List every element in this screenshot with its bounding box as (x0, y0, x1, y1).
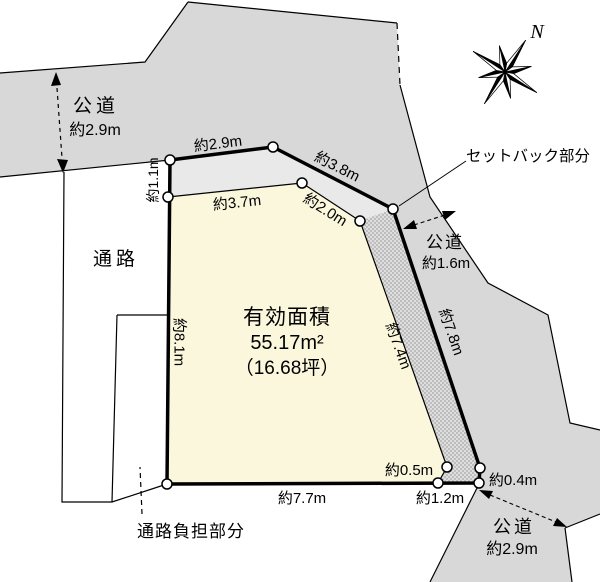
road-left-name: 公道 (73, 95, 119, 117)
vertex (388, 204, 398, 214)
vertex (162, 479, 172, 489)
road-bottom-name: 公道 (493, 517, 535, 537)
vertex (297, 178, 307, 188)
road-bottom-width: 約2.9m (486, 540, 538, 558)
area-sqm: 55.17m² (250, 332, 324, 354)
passage-burden-label: 通路負担部分 (137, 522, 245, 541)
edge-left-top-label: 約1.1m (145, 157, 161, 202)
passage-label: 通路 (93, 248, 139, 270)
setback-label: セットバック部分 (466, 147, 590, 165)
passage-burden-leader-line (140, 467, 142, 514)
edge-left-label: 約8.1m (171, 318, 188, 366)
vertex (475, 463, 485, 473)
passage-outline (62, 172, 167, 502)
vertex (165, 155, 175, 165)
vertex (442, 462, 452, 472)
vertex (433, 478, 443, 488)
edge-bottom-12-label: 約1.2m (416, 490, 464, 507)
area-tsubo: （16.68坪） (235, 357, 340, 379)
vertex (268, 142, 278, 152)
vertex (163, 192, 173, 202)
road-right-width: 約1.6m (422, 255, 470, 272)
north-label: N (529, 21, 545, 43)
vertex (474, 478, 484, 488)
area-title: 有効面積 (243, 306, 331, 329)
vertex (355, 216, 365, 226)
diagram-canvas: N 公道 約2.9m 通路 約1.1m 約2.9m 約3.8m 約3.7m 約2… (0, 0, 600, 582)
road-right-name: 公道 (426, 233, 464, 252)
road-left-width: 約2.9m (69, 121, 121, 139)
edge-corner-04-label: 約0.4m (489, 472, 537, 489)
passage-lines (62, 172, 168, 502)
passage-burden-left-line (112, 315, 117, 502)
edge-bottom-label: 約7.7m (278, 490, 326, 507)
edge-corner-05-label: 約0.5m (385, 462, 433, 479)
land-plot-diagram: N 公道 約2.9m 通路 約1.1m 約2.9m 約3.8m 約3.7m 約2… (0, 0, 600, 582)
